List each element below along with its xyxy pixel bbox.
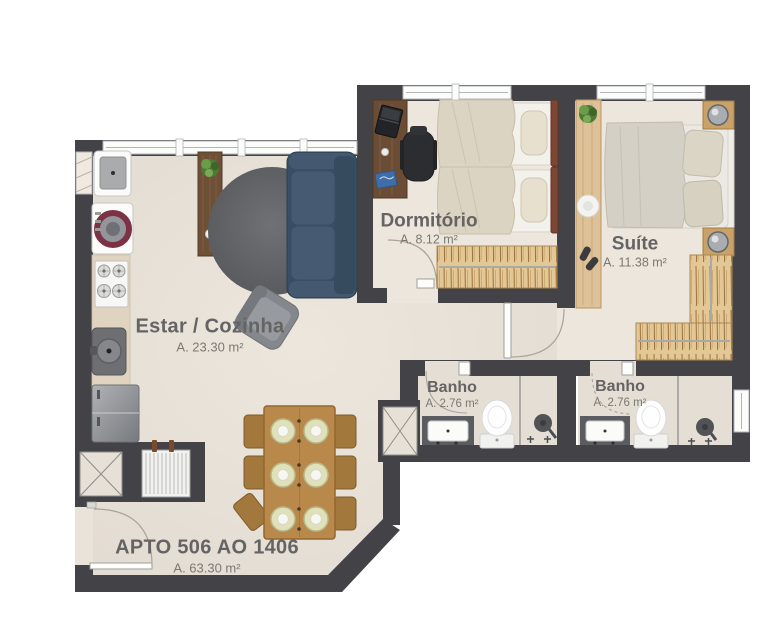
wardrobe-dormitorio xyxy=(437,246,557,288)
dining-set xyxy=(232,406,356,539)
notebook xyxy=(375,170,397,188)
sofa xyxy=(287,152,357,298)
pillow xyxy=(682,129,724,177)
vanity-sink xyxy=(580,416,630,445)
kitchen-sink xyxy=(90,328,126,375)
nightstand-1 xyxy=(703,101,734,129)
vanity-sink xyxy=(422,416,474,445)
toilet xyxy=(634,400,668,448)
kitchen-shaft-duct xyxy=(80,452,122,496)
pillow xyxy=(683,180,724,228)
suite-bench xyxy=(576,100,601,308)
potted-plant xyxy=(579,105,597,123)
nightstand-2 xyxy=(703,228,734,256)
toilet xyxy=(480,400,514,448)
dormitorio-window xyxy=(403,84,511,101)
refrigerator xyxy=(92,385,139,442)
floor-plan: Estar / Cozinha A. 23.30 m² Dormitório A… xyxy=(0,0,770,640)
laundry-tank xyxy=(94,151,131,196)
cooktop-stove xyxy=(95,261,128,307)
double-bed xyxy=(605,122,734,230)
bathroom-shaft-duct xyxy=(383,407,417,455)
lamp xyxy=(708,105,728,125)
suite-window xyxy=(597,84,705,101)
washing-machine xyxy=(92,203,133,254)
floor-plan-drawing xyxy=(0,0,770,640)
mouse xyxy=(382,149,389,156)
banho2-window xyxy=(734,390,749,432)
single-bed-1 xyxy=(438,100,559,167)
potted-plant xyxy=(201,159,219,177)
lamp xyxy=(708,232,728,252)
service-vent-window xyxy=(76,152,92,194)
single-bed-2 xyxy=(438,167,559,234)
